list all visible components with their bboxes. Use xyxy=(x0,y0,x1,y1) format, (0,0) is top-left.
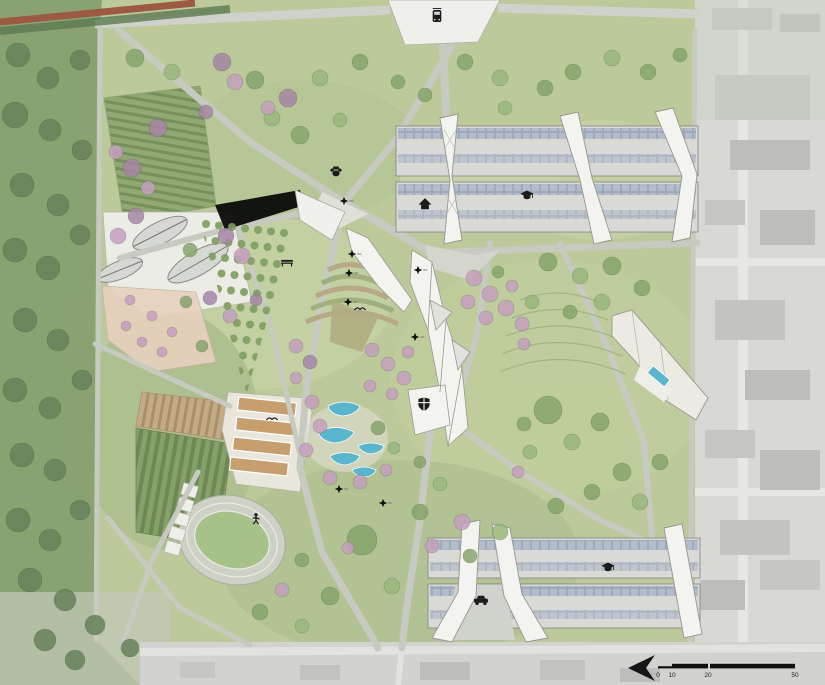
tree xyxy=(37,67,59,89)
tree xyxy=(572,268,588,284)
tree xyxy=(388,442,400,454)
tree xyxy=(123,159,141,177)
tree xyxy=(414,456,426,468)
tree xyxy=(157,347,167,357)
tree xyxy=(303,355,317,369)
tree xyxy=(295,553,309,567)
tree xyxy=(353,475,367,489)
orchard-tree xyxy=(251,242,259,250)
tree xyxy=(39,119,61,141)
tree xyxy=(364,380,376,392)
tree xyxy=(564,434,580,450)
tree xyxy=(534,396,562,424)
tree xyxy=(261,101,275,115)
orchard-tree xyxy=(215,222,223,230)
tree xyxy=(125,295,135,305)
tree xyxy=(275,583,289,597)
tree xyxy=(312,70,328,86)
tree xyxy=(72,370,92,390)
orchard-tree xyxy=(238,240,246,248)
context-bottom-strip xyxy=(140,642,825,685)
tree xyxy=(39,397,61,419)
tree xyxy=(594,294,610,310)
tree xyxy=(492,70,508,86)
tree xyxy=(290,372,302,384)
tree xyxy=(44,459,66,481)
tree xyxy=(673,48,687,62)
tree xyxy=(305,395,319,409)
orchard-tree xyxy=(260,259,268,267)
tree xyxy=(279,89,297,107)
scale-label-20: 20 xyxy=(704,672,712,679)
orchard-tree xyxy=(241,225,249,233)
tree xyxy=(461,295,475,309)
orchard-tree xyxy=(243,336,251,344)
tree xyxy=(466,270,482,286)
tree xyxy=(539,253,557,271)
tree xyxy=(323,471,337,485)
tree xyxy=(121,321,131,331)
tree xyxy=(634,280,650,296)
masterplan-canvas: 0 10 20 50 xyxy=(0,0,825,685)
orchard-tree xyxy=(267,228,275,236)
tree xyxy=(632,494,648,510)
tree xyxy=(295,619,309,633)
tree xyxy=(418,88,432,102)
orchard-tree xyxy=(237,304,245,312)
tree xyxy=(412,504,428,520)
tree xyxy=(121,639,139,657)
orchard-tree xyxy=(231,271,239,279)
tree xyxy=(381,357,395,371)
tree xyxy=(291,126,309,144)
tree xyxy=(525,295,539,309)
tree xyxy=(141,181,155,195)
tree xyxy=(365,343,379,357)
tree xyxy=(246,71,264,89)
tree xyxy=(492,266,504,278)
tree xyxy=(196,340,208,352)
tree xyxy=(313,419,327,433)
site-plan-svg: 0 10 20 50 xyxy=(0,0,825,685)
tree xyxy=(479,311,493,325)
orchard-tree xyxy=(266,291,274,299)
tree xyxy=(10,443,34,467)
tram-stop-icon xyxy=(433,9,442,22)
tree xyxy=(604,50,620,66)
scale-label-50: 50 xyxy=(791,672,799,679)
scale-label-10: 10 xyxy=(668,672,676,679)
tree xyxy=(454,514,470,530)
tree xyxy=(391,75,405,89)
tree xyxy=(498,101,512,115)
tree xyxy=(47,329,69,351)
tree xyxy=(128,208,144,224)
tree xyxy=(371,421,385,435)
tree xyxy=(70,50,90,70)
orchard-tree xyxy=(270,276,278,284)
tree xyxy=(110,228,126,244)
tree xyxy=(3,378,27,402)
tree xyxy=(523,445,537,459)
scale-label-0: 0 xyxy=(656,672,660,679)
tree xyxy=(13,308,37,332)
tree xyxy=(548,498,564,514)
tree xyxy=(36,256,60,280)
tree xyxy=(227,74,243,90)
orchard-tree xyxy=(273,260,281,268)
tree xyxy=(10,173,34,197)
tree xyxy=(506,280,518,292)
tree xyxy=(34,629,56,651)
scale-segment-3 xyxy=(710,664,795,669)
tree xyxy=(342,542,354,554)
tree xyxy=(457,54,473,70)
tree xyxy=(321,587,339,605)
orchard-tree xyxy=(280,229,288,237)
tree xyxy=(584,484,600,500)
tree xyxy=(54,589,76,611)
orchard-tree xyxy=(257,274,265,282)
tree xyxy=(85,615,105,635)
tree xyxy=(213,53,231,71)
scale-segment-2 xyxy=(672,664,708,669)
tree xyxy=(6,508,30,532)
tree xyxy=(6,43,30,67)
scale-segment-1 xyxy=(658,666,672,668)
tree xyxy=(492,524,508,540)
tree xyxy=(333,113,347,127)
tree xyxy=(537,80,553,96)
orchard-tree xyxy=(240,288,248,296)
tree xyxy=(199,105,213,119)
orchard-tree xyxy=(239,352,247,360)
tree xyxy=(3,238,27,262)
tree xyxy=(384,578,400,594)
orchard-tree xyxy=(246,321,254,329)
orchard-tree xyxy=(221,254,229,262)
tree xyxy=(137,337,147,347)
tree xyxy=(183,243,197,257)
orchard-tree xyxy=(218,270,226,278)
tree xyxy=(2,102,28,128)
tree xyxy=(299,443,313,457)
tree xyxy=(482,286,498,302)
tree xyxy=(498,300,514,316)
tree xyxy=(65,650,85,670)
tree xyxy=(39,529,61,551)
tree xyxy=(380,464,392,476)
tree xyxy=(70,500,90,520)
tree xyxy=(164,64,180,80)
orchard-tree xyxy=(227,287,235,295)
orchard-tree xyxy=(264,243,272,251)
tree xyxy=(180,296,192,308)
tree xyxy=(18,568,42,592)
tree xyxy=(218,228,234,244)
tree xyxy=(47,194,69,216)
tree xyxy=(425,539,439,553)
buildings-north xyxy=(396,108,698,244)
tree xyxy=(565,64,581,80)
tree xyxy=(433,477,447,491)
tree xyxy=(563,305,577,319)
tree xyxy=(252,604,268,620)
orchard-tree xyxy=(202,220,210,228)
tree xyxy=(70,225,90,245)
tree xyxy=(613,463,631,481)
tree xyxy=(72,140,92,160)
tree xyxy=(518,338,530,350)
tree xyxy=(147,311,157,321)
tree xyxy=(203,291,217,305)
tree xyxy=(126,49,144,67)
tree xyxy=(402,346,414,358)
tree xyxy=(512,466,524,478)
tree xyxy=(591,413,609,431)
tree xyxy=(603,257,621,275)
tree xyxy=(223,309,237,323)
orchard-tree xyxy=(277,245,285,253)
orchard-tree xyxy=(244,273,252,281)
tree xyxy=(515,317,529,331)
tree xyxy=(250,294,262,306)
tree xyxy=(463,549,477,563)
tree xyxy=(149,119,167,137)
tree xyxy=(352,54,368,70)
tree xyxy=(386,388,398,400)
tree xyxy=(397,371,411,385)
tree xyxy=(517,417,531,431)
context-urban-right xyxy=(695,0,825,685)
tree xyxy=(109,145,123,159)
orchard-tree xyxy=(254,226,262,234)
tree xyxy=(289,339,303,353)
tree xyxy=(652,454,668,470)
tree xyxy=(640,64,656,80)
tree xyxy=(167,327,177,337)
tree xyxy=(234,248,250,264)
